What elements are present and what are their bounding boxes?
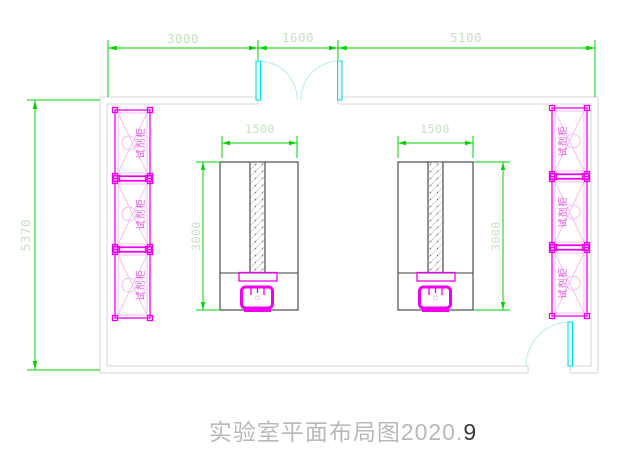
- dimension-text: 1500: [420, 122, 450, 136]
- right-cabinet-column: 试剂柜 试剂柜: [550, 106, 590, 319]
- door-leaf-bottom: [568, 322, 573, 366]
- sink-grate: [417, 273, 455, 282]
- drawing-title: 实验室平面布局图2020.9: [209, 419, 477, 445]
- dimension-left-wall: 5370: [18, 100, 100, 370]
- wall-outer-line: [100, 97, 598, 373]
- cabinet: 试剂柜: [113, 179, 153, 250]
- dimension-arrow: [33, 100, 38, 109]
- cabinet-label: 试剂柜: [135, 127, 147, 159]
- door-swing-arc-right: [301, 61, 340, 100]
- cabinet-knob-icon: [122, 207, 136, 221]
- dimension-arrow: [501, 162, 505, 170]
- top-double-door: [256, 61, 342, 100]
- wall-inner-line: [107, 104, 591, 366]
- dimension-left-bench-height: 3000: [189, 162, 220, 310]
- left-cabinet-column: 试剂柜 试剂柜: [113, 108, 153, 321]
- dimension-arrow: [201, 162, 205, 170]
- dimension-text-top-right: 5100: [450, 30, 482, 45]
- dimension-arrow: [258, 46, 267, 51]
- dimension-text: 3000: [189, 221, 203, 251]
- cabinet-label: 试剂柜: [557, 196, 569, 228]
- dimension-arrow: [465, 141, 473, 145]
- dimension-arrow: [108, 46, 117, 51]
- dimension-arrow: [201, 302, 205, 310]
- dimension-arrow: [501, 302, 505, 310]
- left-lab-bench: [220, 162, 298, 311]
- dimension-arrow: [33, 361, 38, 370]
- dimension-arrow: [586, 46, 595, 51]
- dimension-text-top-middle: 1600: [282, 30, 314, 45]
- cabinet-label: 试剂柜: [557, 267, 569, 299]
- cabinet: 试剂柜: [550, 248, 590, 319]
- floor-plan-canvas: 3000 1600 5100 5370 1500 3000: [0, 0, 619, 469]
- connector-bar: [119, 248, 146, 252]
- cabinet-label: 试剂柜: [557, 125, 569, 157]
- cabinet-knob-icon: [122, 136, 136, 150]
- wall-opening-jambs: [258, 97, 570, 373]
- cabinet-label: 试剂柜: [135, 269, 147, 301]
- cabinet: 试剂柜: [113, 108, 153, 179]
- sink-drain: [256, 296, 260, 300]
- dimension-arrow: [398, 141, 406, 145]
- dimension-arrow: [329, 46, 338, 51]
- dimension-text-top-left: 3000: [167, 31, 199, 46]
- door-swing-arc-bottom: [526, 322, 570, 366]
- dimension-left-bench-width: 1500: [222, 122, 297, 158]
- dimension-arrow: [338, 46, 347, 51]
- sink-icon: [239, 273, 277, 311]
- dimension-arrow: [222, 141, 230, 145]
- dimension-line: [108, 40, 595, 97]
- door-swing-arc-left: [258, 61, 297, 100]
- dimension-text: 3000: [489, 221, 503, 251]
- door-leaf-left: [256, 61, 261, 100]
- bottom-right-door: [526, 322, 573, 366]
- floor-plan-drawing: 3000 1600 5100 5370 1500 3000: [0, 0, 619, 469]
- right-lab-bench: [398, 162, 473, 311]
- dimension-arrow: [289, 141, 297, 145]
- connector-bar: [556, 175, 583, 179]
- sink-drain: [434, 296, 438, 300]
- cabinet-label: 试剂柜: [135, 198, 147, 230]
- cabinet-knob-icon: [122, 278, 136, 292]
- dimension-right-bench-width: 1500: [398, 122, 473, 158]
- dimension-text: 1500: [245, 122, 275, 136]
- bench-center-strip: [428, 162, 443, 273]
- cabinet: 试剂柜: [550, 177, 590, 248]
- room-walls: [100, 97, 598, 373]
- dimension-text-left-wall: 5370: [18, 219, 33, 251]
- dimension-right-bench-height: 3000: [473, 162, 510, 310]
- dimension-top: 3000 1600 5100: [108, 30, 595, 97]
- connector-bar: [556, 246, 583, 250]
- dimension-line: [222, 136, 297, 158]
- dimension-line: [27, 100, 100, 370]
- drawing-title-main: 实验室平面布局图2020.: [209, 419, 464, 445]
- cabinet: 试剂柜: [113, 250, 153, 321]
- drawing-title-suffix: 9: [463, 419, 477, 445]
- cabinet: 试剂柜: [550, 106, 590, 177]
- dimension-line: [398, 136, 473, 158]
- sink-grate: [239, 273, 277, 282]
- door-leaf-right: [338, 61, 343, 100]
- connector-bar: [119, 177, 146, 181]
- sink-icon: [417, 273, 455, 311]
- dimension-arrow: [249, 46, 258, 51]
- bench-center-strip: [250, 162, 265, 273]
